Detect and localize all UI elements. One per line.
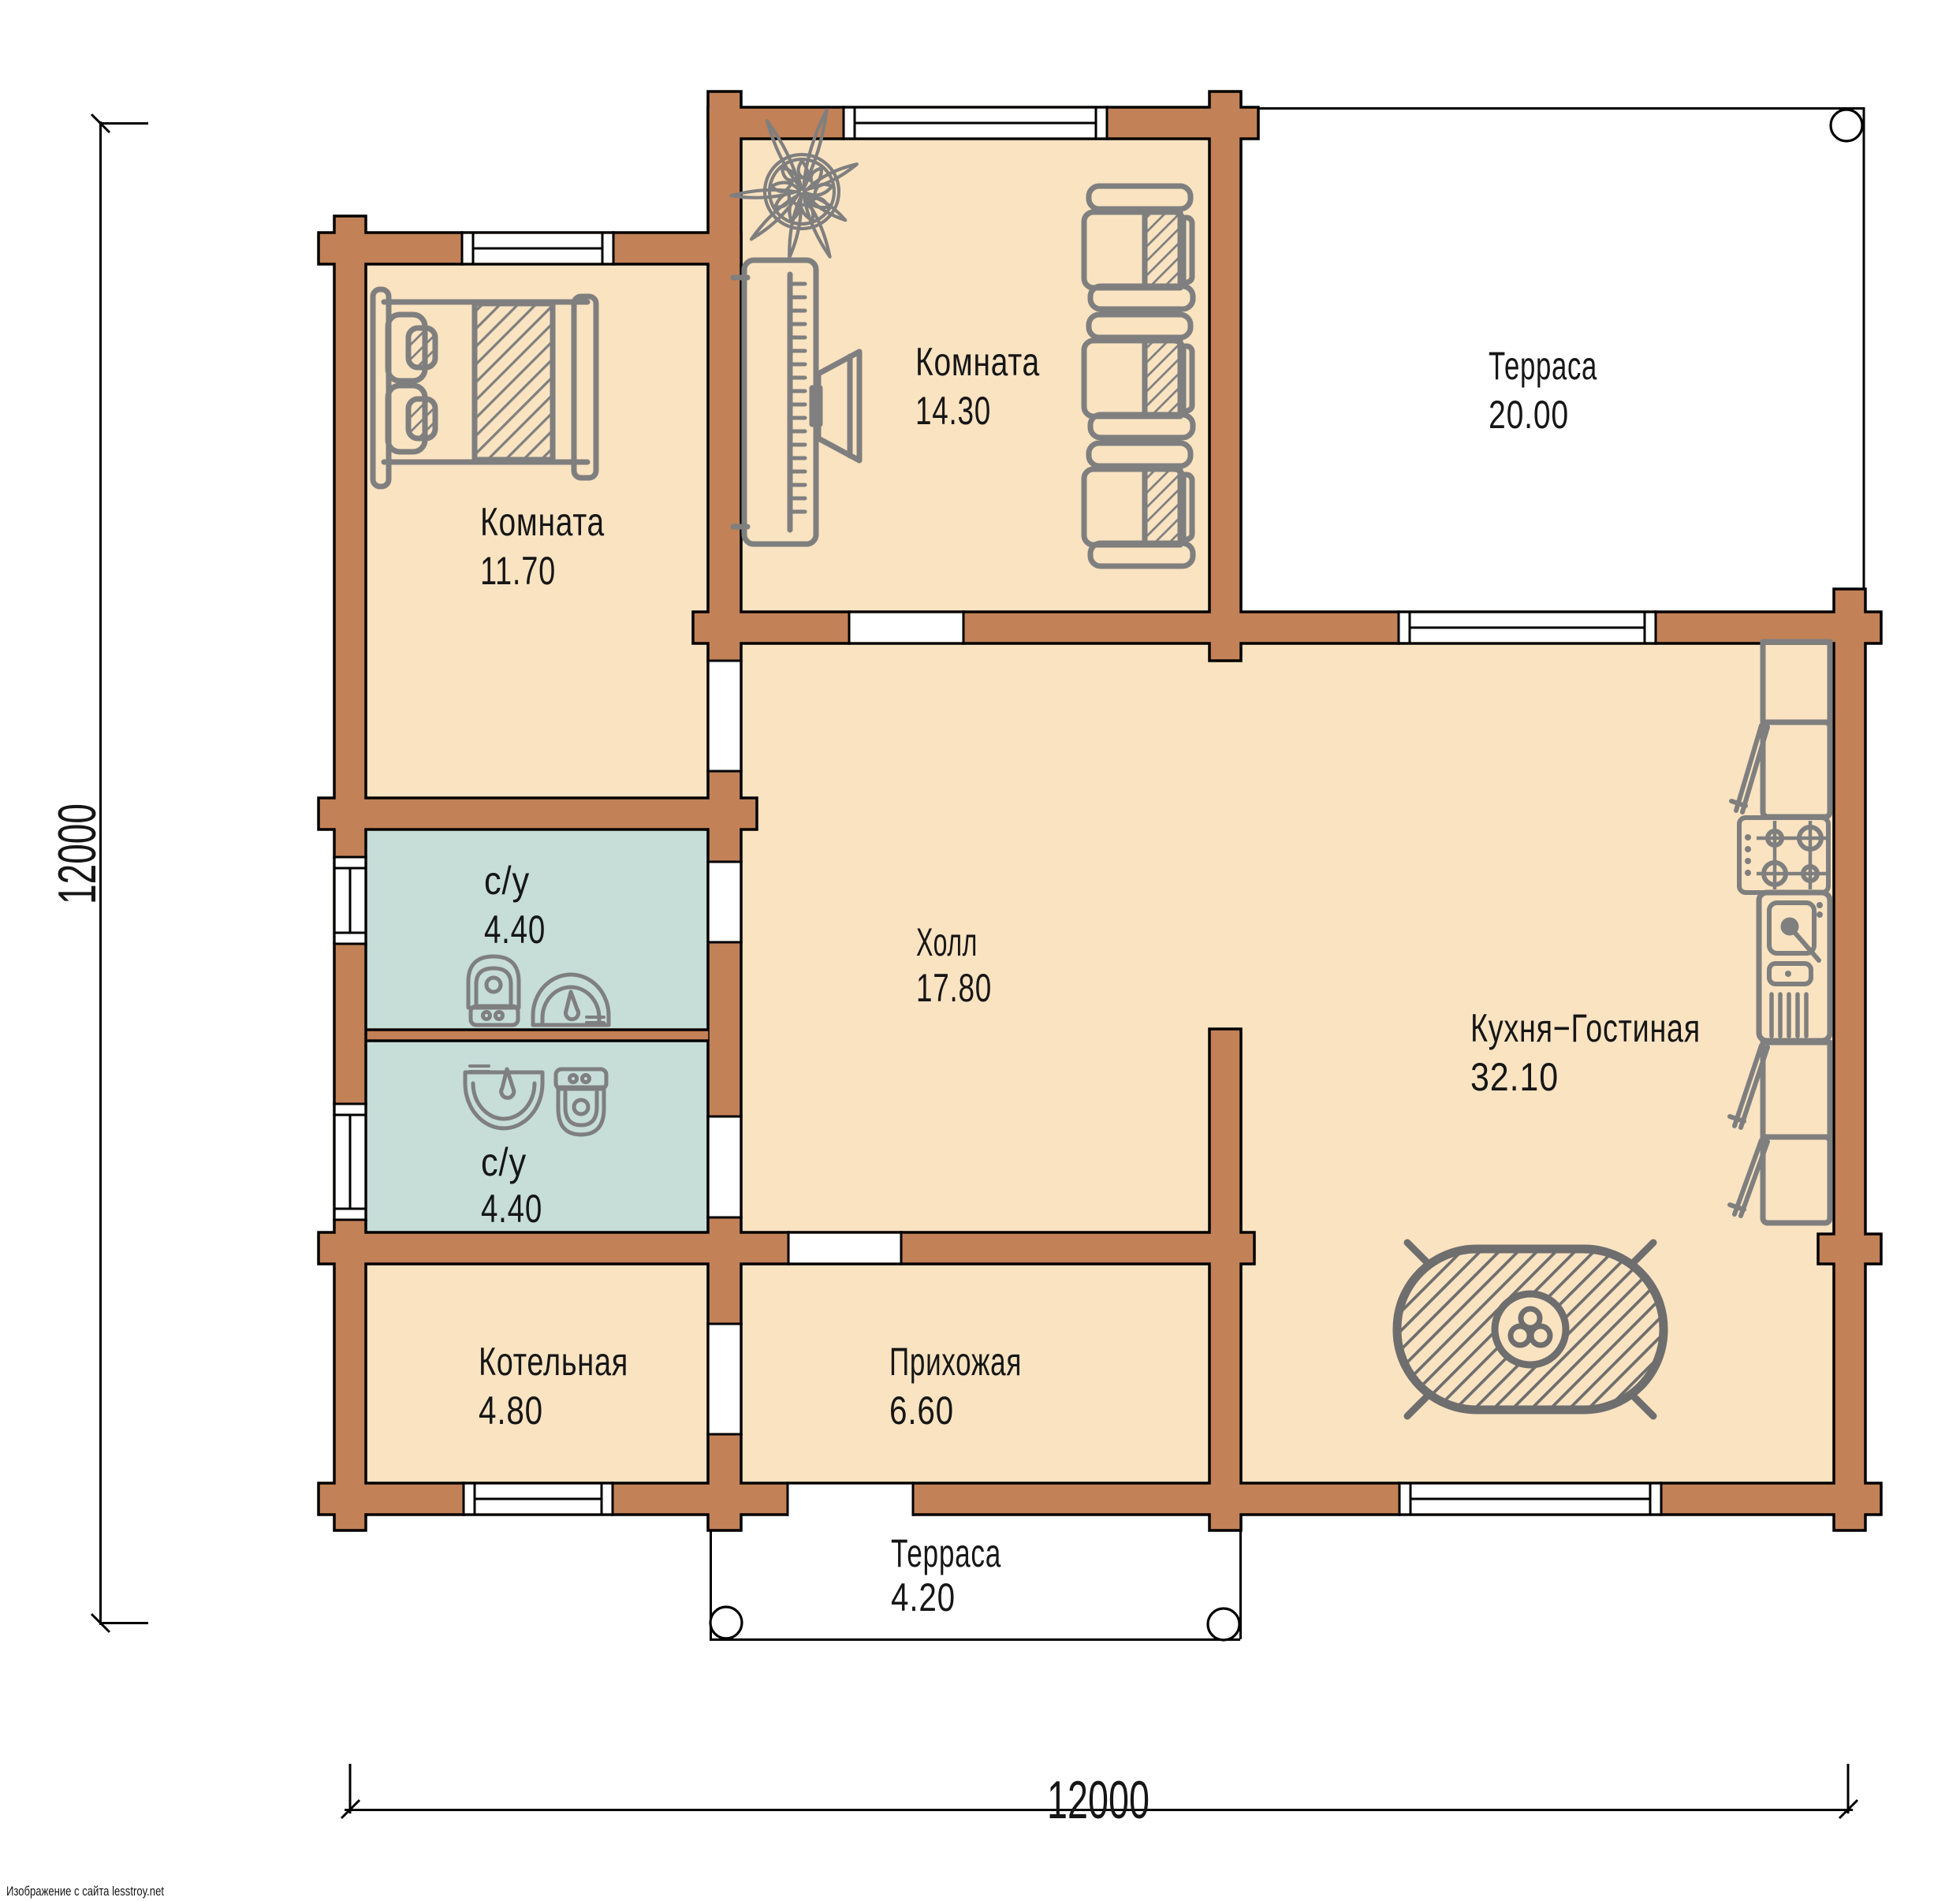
svg-text:Комната: Комната <box>480 500 605 544</box>
svg-text:4.20: 4.20 <box>891 1575 956 1620</box>
svg-text:Холл: Холл <box>916 920 978 964</box>
svg-text:Изображение с сайта lesstroy.n: Изображение с сайта lesstroy.net <box>6 1884 164 1899</box>
svg-text:Терраса: Терраса <box>891 1531 1001 1575</box>
svg-text:4.80: 4.80 <box>479 1388 543 1433</box>
svg-text:12000: 12000 <box>1047 1770 1150 1830</box>
svg-text:17.80: 17.80 <box>916 966 992 1010</box>
svg-text:20.00: 20.00 <box>1489 393 1569 437</box>
svg-text:11.70: 11.70 <box>480 549 556 593</box>
svg-text:Кухня−Гостиная: Кухня−Гостиная <box>1470 1006 1701 1050</box>
svg-text:12000: 12000 <box>47 803 107 904</box>
svg-text:4.40: 4.40 <box>484 908 546 952</box>
svg-text:Комната: Комната <box>915 340 1040 384</box>
svg-text:Котельная: Котельная <box>479 1340 628 1384</box>
svg-text:4.40: 4.40 <box>481 1187 542 1231</box>
svg-text:14.30: 14.30 <box>915 389 991 433</box>
svg-text:6.60: 6.60 <box>889 1388 954 1433</box>
svg-text:с/у: с/у <box>484 859 530 903</box>
svg-text:Прихожая: Прихожая <box>889 1340 1022 1384</box>
svg-text:Терраса: Терраса <box>1489 344 1597 388</box>
svg-text:32.10: 32.10 <box>1470 1055 1559 1099</box>
svg-text:с/у: с/у <box>481 1140 527 1184</box>
